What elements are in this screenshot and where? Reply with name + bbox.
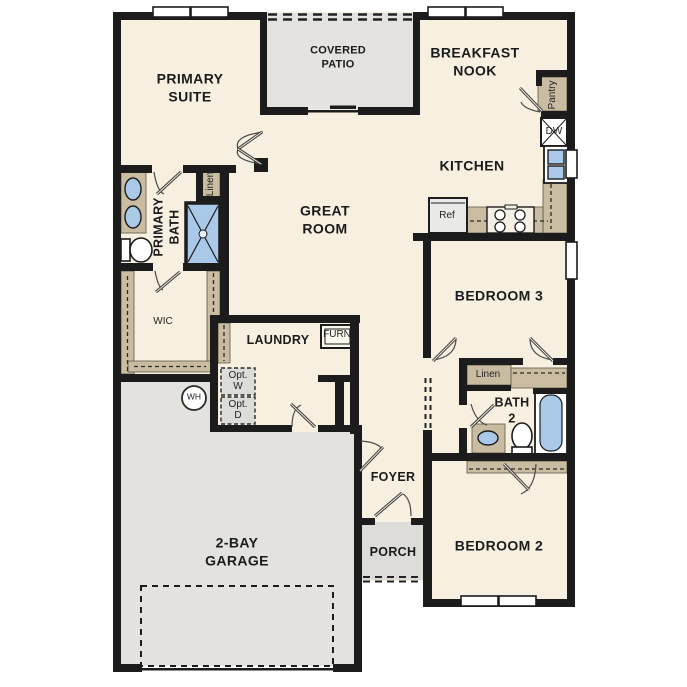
label-primary-suite: PRIMARYSUITE [157,71,224,106]
window-icon [461,596,498,606]
label-foyer: FOYER [371,470,416,486]
label-linen-hall: Linen [476,369,500,382]
label-linen-primary: Linen [205,172,218,196]
garage-door-threshold [140,668,334,671]
label-laundry: LAUNDRY [247,333,310,349]
label-pantry: Pantry [547,81,560,110]
shower-icon [186,203,220,265]
bedroom3-closet-shelf [511,368,567,388]
window-icon [153,7,190,17]
floor-plan-drawing [0,0,687,687]
label-furnace: FURN [323,329,351,342]
stove-icon [487,205,534,233]
toilet-icon [512,423,532,454]
label-porch: PORCH [370,545,417,561]
label-kitchen: KITCHEN [439,157,504,175]
label-great-room: GREATROOM [300,203,350,238]
sink-icon [478,431,498,445]
label-water-heater: WH [187,392,201,403]
label-wic: WIC [153,316,172,329]
window-icon [566,150,577,178]
sink-icon [125,206,141,228]
kitchen-sink-icon [544,146,568,183]
label-dishwasher: DW [546,126,563,139]
floor-plan: PRIMARYSUITE COVEREDPATIO BREAKFASTNOOK … [0,0,687,687]
window-icon [466,7,503,17]
label-bedroom-2: BEDROOM 2 [455,537,543,555]
label-breakfast-nook: BREAKFASTNOOK [430,45,519,80]
bedroom2-closet-shelf [467,461,567,473]
bathtub-icon [535,390,567,455]
patio-slider [306,110,358,113]
window-icon [428,7,465,17]
window-icon [191,7,228,17]
label-bath-2: BATH2 [495,395,530,426]
window-icon [566,242,577,279]
label-covered-patio: COVEREDPATIO [310,44,366,72]
kitchen-counter-side [543,180,567,233]
label-primary-bath: PRIMARYBATH [151,197,182,256]
label-optional-dryer: Opt.D [229,399,248,421]
sink-icon [125,178,141,200]
label-bedroom-3: BEDROOM 3 [455,287,543,305]
label-optional-washer: Opt.W [229,370,248,392]
window-icon [499,596,536,606]
toilet-icon [121,238,152,262]
label-refrigerator: Ref [439,210,455,223]
label-garage: 2-BAYGARAGE [205,535,269,570]
